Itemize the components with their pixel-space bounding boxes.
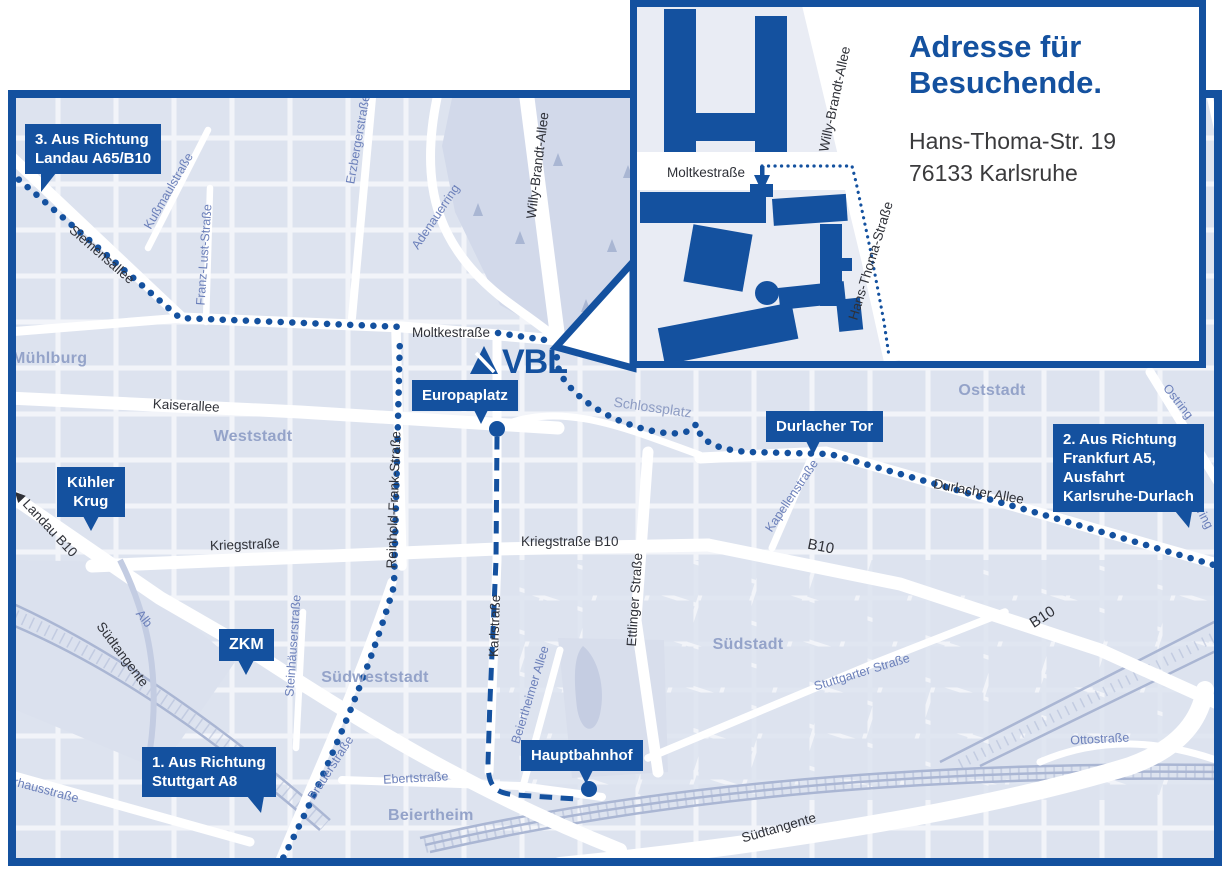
callout-kuehler-krug: Kühler Krug [57, 467, 125, 517]
anfahrt-map-page: Mühlburg Weststadt Oststadt Südstadt Süd… [0, 0, 1230, 874]
callout-line: Karlsruhe-Durlach [1063, 487, 1194, 506]
callout-europaplatz: Europaplatz [412, 380, 518, 411]
label-kriegstrasse-b10: Kriegstraße B10 [521, 534, 619, 549]
callout-line: Hauptbahnhof [531, 746, 633, 765]
callout-line: 3. Aus Richtung [35, 130, 151, 149]
callout-pointer [83, 516, 99, 531]
address-street: Hans-Thoma-Str. 19 [909, 125, 1191, 157]
callout-line: Krug [67, 492, 115, 511]
inset-title-line2: Besuchende. [909, 65, 1191, 101]
callout-pointer [247, 796, 264, 813]
vbl-logo-text: VBL [502, 343, 567, 381]
address-inset-panel: Moltkestraße Willy-Brandt-Allee Hans-Tho… [630, 0, 1206, 368]
callout-pointer [579, 770, 593, 784]
callout-route-from-frankfurt: 2. Aus Richtung Frankfurt A5, Ausfahrt K… [1053, 424, 1204, 512]
callout-pointer [806, 441, 820, 455]
district-muehlburg: Mühlburg [12, 350, 87, 367]
district-suedstadt: Südstadt [713, 636, 784, 653]
callout-line: Stuttgart A8 [152, 772, 266, 791]
callout-route-from-stuttgart: 1. Aus Richtung Stuttgart A8 [142, 747, 276, 797]
inset-label-moltkestrasse: Moltkestraße [667, 165, 745, 180]
callout-zkm: ZKM [219, 629, 274, 661]
callout-line: Frankfurt A5, [1063, 449, 1194, 468]
callout-line: ZKM [229, 635, 264, 655]
inset-title: Adresse für Besuchende. [909, 29, 1191, 101]
callout-pointer [41, 173, 56, 192]
inset-title-line1: Adresse für [909, 29, 1191, 65]
district-oststadt: Oststadt [958, 382, 1026, 399]
label-moltkestrasse: Moltkestraße [412, 325, 490, 340]
district-suedweststadt: Südweststadt [321, 669, 429, 686]
callout-durlacher-tor: Durlacher Tor [766, 411, 883, 442]
address-city: 76133 Karlsruhe [909, 157, 1191, 189]
callout-hauptbahnhof: Hauptbahnhof [521, 740, 643, 771]
district-beiertheim: Beiertheim [388, 807, 474, 824]
callout-pointer [238, 660, 254, 675]
callout-line: 1. Aus Richtung [152, 753, 266, 772]
callout-route-from-landau: 3. Aus Richtung Landau A65/B10 [25, 124, 161, 174]
label-karlstrasse: Karlstraße [486, 594, 503, 657]
europaplatz-stop-marker [489, 421, 505, 437]
callout-pointer [1175, 511, 1192, 528]
callout-line: 2. Aus Richtung [1063, 430, 1194, 449]
district-weststadt: Weststadt [214, 428, 293, 445]
callout-line: Landau A65/B10 [35, 149, 151, 168]
callout-line: Ausfahrt [1063, 468, 1194, 487]
visitor-address: Hans-Thoma-Str. 19 76133 Karlsruhe [909, 125, 1191, 189]
callout-line: Durlacher Tor [776, 417, 873, 436]
callout-pointer [474, 410, 488, 424]
callout-line: Europaplatz [422, 386, 508, 405]
callout-line: Kühler [67, 473, 115, 492]
label-kriegstrasse: Kriegstraße [210, 536, 280, 553]
visitor-address-block: Adresse für Besuchende. Hans-Thoma-Str. … [909, 29, 1191, 189]
